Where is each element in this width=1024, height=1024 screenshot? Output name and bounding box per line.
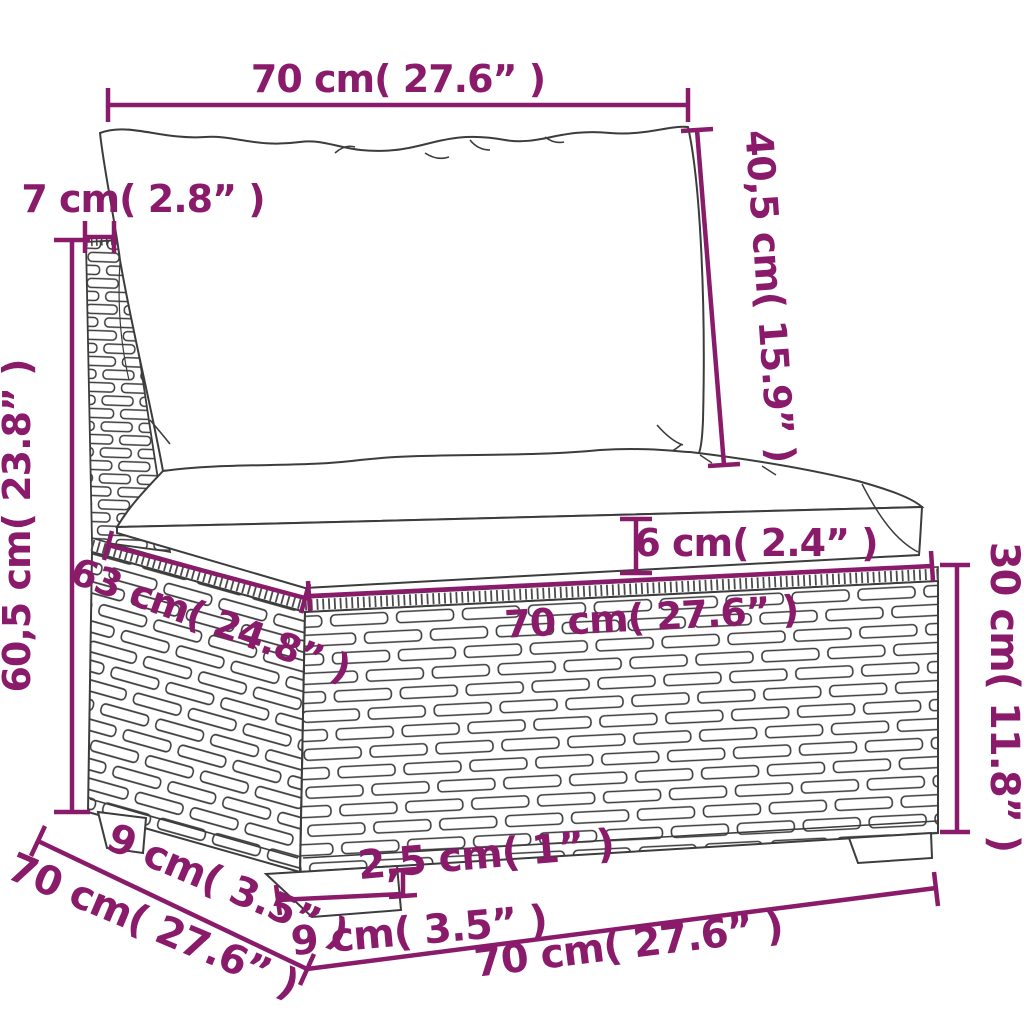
back-frame-width-label: 7 cm( 2.8” ) [21,177,264,221]
front-right-leg [849,833,932,863]
dim-base-height [940,565,970,832]
base-height-label: 30 cm( 11.8” ) [981,542,1024,852]
seat-cushion [117,449,922,588]
total-height-label: 60,5 cm( 23.8” ) [0,359,39,692]
back-cushion-height-label: 40,5 cm( 15.9” ) [736,128,803,463]
dim-total-height [54,240,90,812]
seat-cushion-thickness-label: 6 cm( 2.4” ) [634,521,877,565]
back-cushion-width-label: 70 cm( 27.6” ) [251,57,545,101]
dimension-diagram: 70 cm( 27.6” ) 7 cm( 2.8” ) 60,5 cm( 23.… [0,0,1024,1024]
sofa-dimension-drawing: 70 cm( 27.6” ) 7 cm( 2.8” ) 60,5 cm( 23.… [0,0,1024,1024]
